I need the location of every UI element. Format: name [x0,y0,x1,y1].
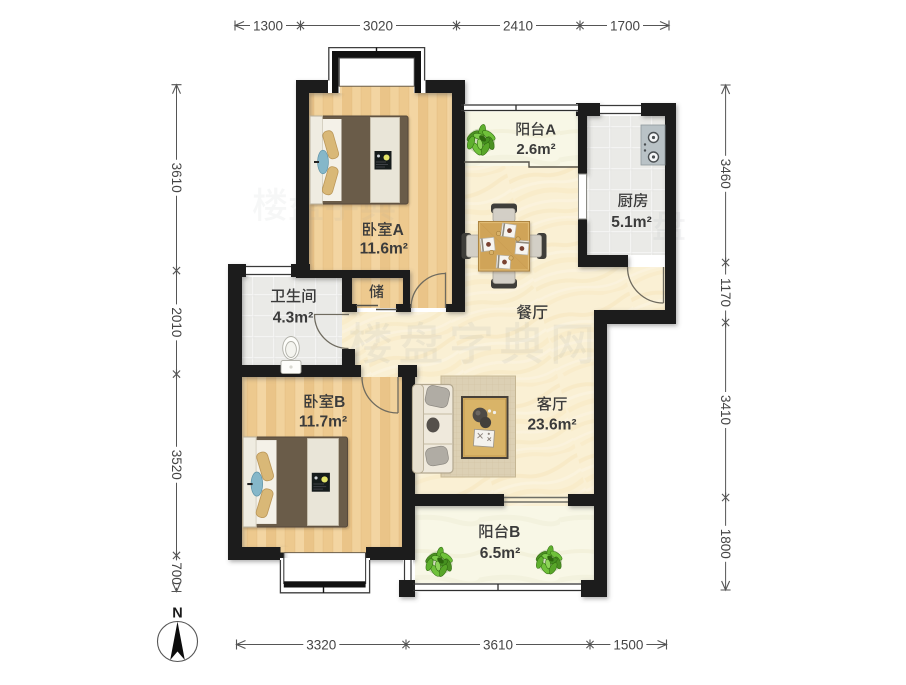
svg-text:2.6m²: 2.6m² [516,141,555,158]
svg-text:1700: 1700 [610,18,640,33]
svg-text:1500: 1500 [613,637,643,652]
svg-text:3610: 3610 [169,163,184,193]
svg-text:1170: 1170 [718,278,733,307]
svg-text:1300: 1300 [253,18,283,33]
svg-text:5.1m²: 5.1m² [611,214,652,231]
svg-text:1800: 1800 [718,529,733,559]
svg-text:3410: 3410 [718,395,733,425]
svg-text:3320: 3320 [306,637,336,652]
svg-text:B: B [334,394,345,411]
svg-text:700: 700 [169,562,184,585]
svg-text:2010: 2010 [169,307,184,337]
svg-text:3020: 3020 [363,18,393,33]
svg-text:11.7m²: 11.7m² [299,414,347,431]
svg-text:A: A [545,122,556,139]
svg-text:2410: 2410 [503,18,533,33]
svg-text:A: A [393,222,404,239]
svg-text:11.6m²: 11.6m² [360,241,408,258]
svg-text:3520: 3520 [169,450,184,480]
svg-text:3610: 3610 [483,637,513,652]
svg-text:3460: 3460 [718,159,733,189]
svg-text:23.6m²: 23.6m² [527,417,576,434]
svg-text:B: B [509,524,520,541]
svg-text:N: N [172,606,182,622]
svg-text:6.5m²: 6.5m² [480,545,521,562]
svg-text:4.3m²: 4.3m² [273,310,314,327]
